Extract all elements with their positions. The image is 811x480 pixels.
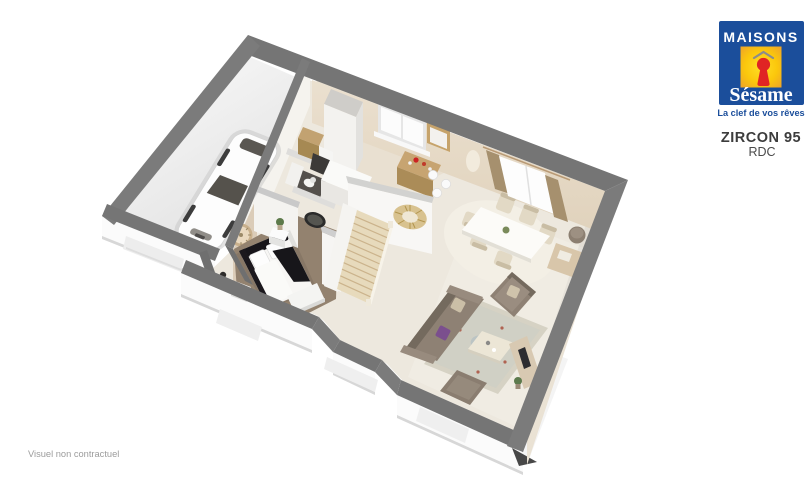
svg-text:Visuel non contractuel: Visuel non contractuel [28,449,119,459]
svg-text:Sésame: Sésame [729,84,792,106]
svg-text:MAISONS: MAISONS [723,29,798,45]
svg-text:La clef de vos rêves: La clef de vos rêves [717,108,804,118]
svg-text:RDC: RDC [748,145,775,159]
svg-text:ZIRCON 95: ZIRCON 95 [721,130,801,146]
